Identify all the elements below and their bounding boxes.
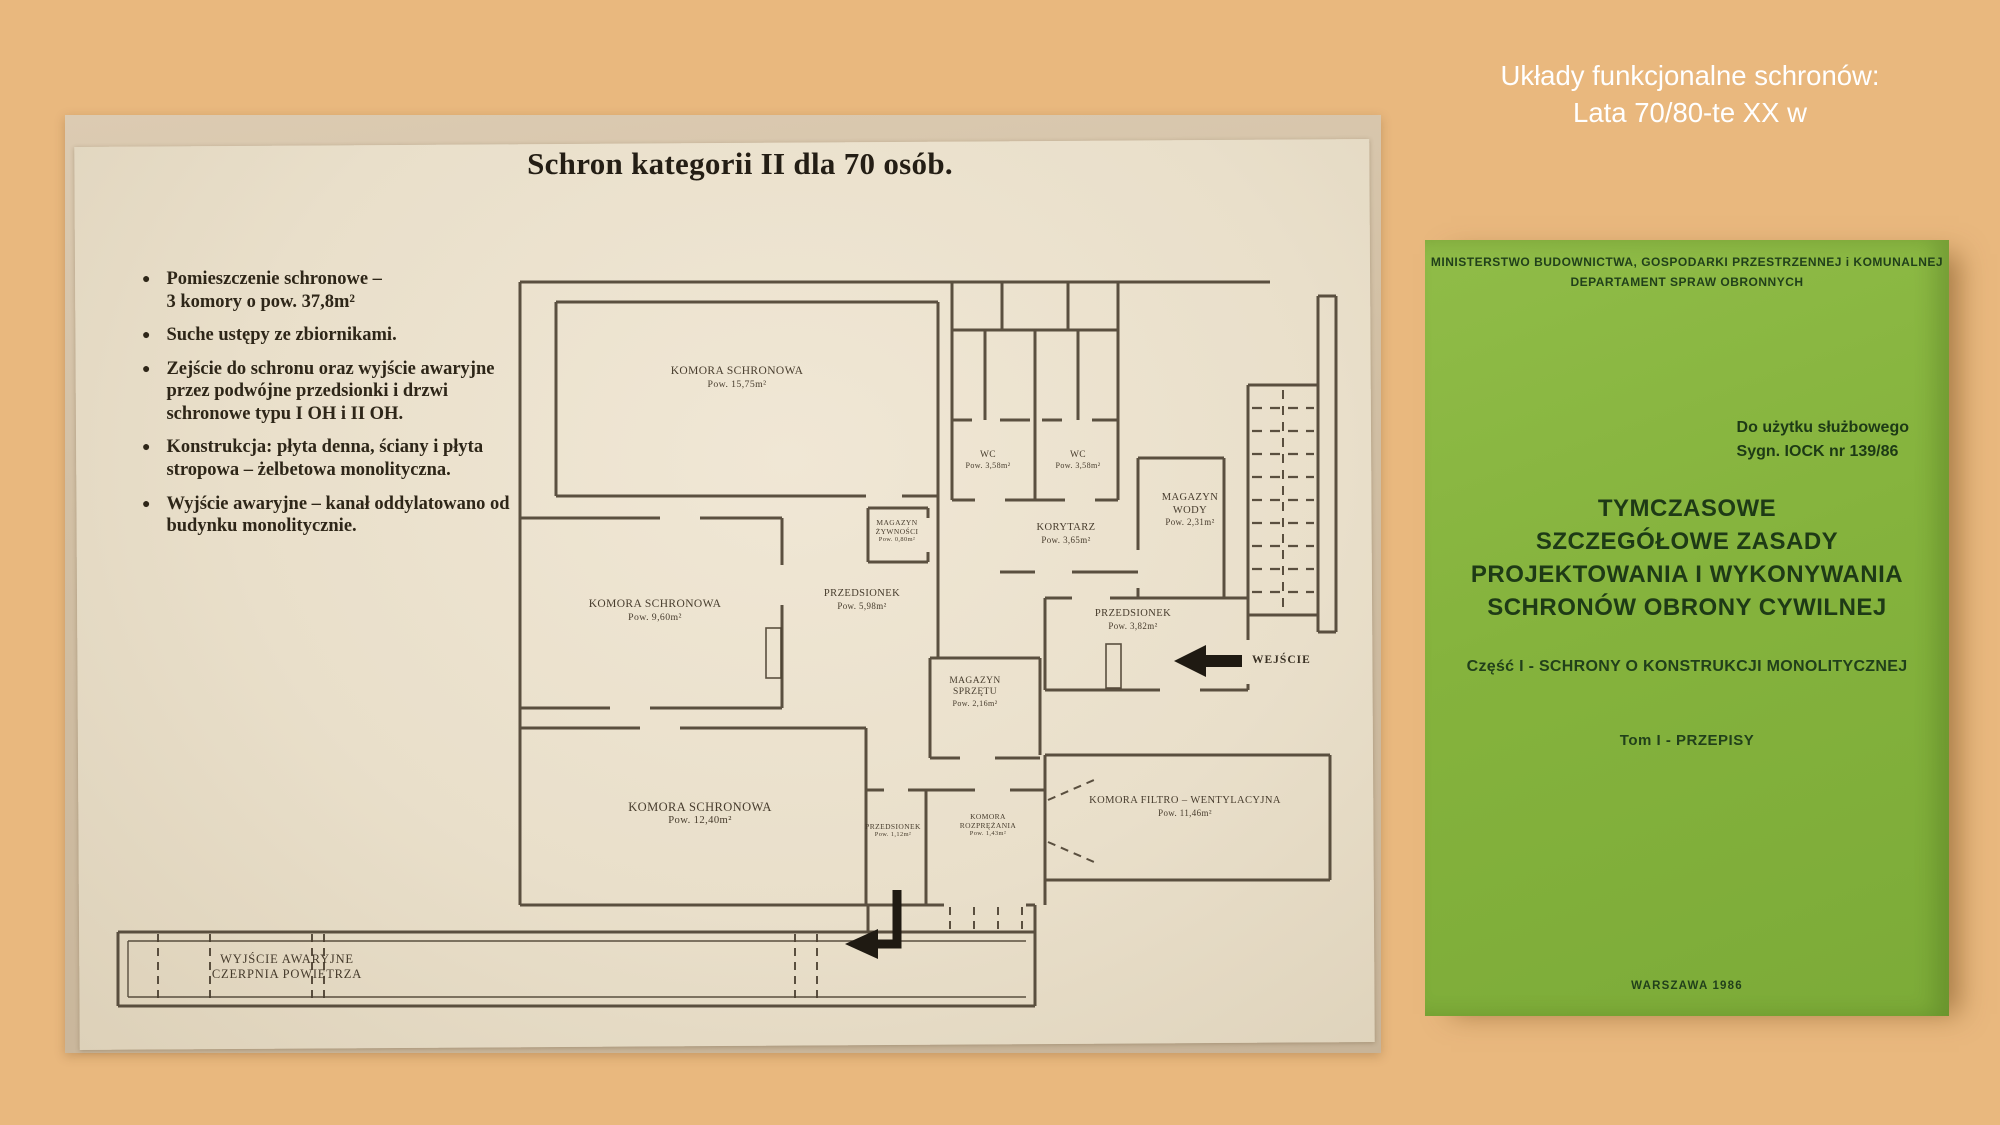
room-label-magazyn-sprzetu: MAGAZYN SPRZĘTUPow. 2,16m² [949,676,1000,708]
book-cover-footer: WARSZAWA 1986 [1425,980,1949,992]
room-label-korytarz: KORYTARZPow. 3,65m² [1037,522,1096,545]
bullet-dot: ● [142,271,150,313]
room-name: PRZEDSIONEK [865,822,921,831]
room-name: KORYTARZ [1037,522,1096,535]
room-name: MAGAZYN SPRZĘTU [949,676,1000,699]
room-label-magazyn-wody: MAGAZYN WODYPow. 2,31m² [1162,492,1218,528]
book-cover: MINISTERSTWO BUDOWNICTWA, GOSPODARKI PRZ… [1425,240,1949,1016]
room-label-komora-schronowa-960: KOMORA SCHRONOWAPow. 9,60m² [589,598,722,624]
bullet-item: ●Pomieszczenie schronowe – 3 komory o po… [142,268,572,313]
room-name: MAGAZYN WODY [1162,492,1218,517]
bullet-text: Konstrukcja: płyta denna, ściany i płyta… [166,436,483,481]
entrance-label: WEJŚCIE [1252,654,1311,668]
room-area: Pow. 3,58m² [965,461,1010,471]
bullet-text: Zejście do schronu oraz wyjście awaryjne… [166,358,494,426]
bullet-item: ●Zejście do schronu oraz wyjście awaryjn… [142,358,572,426]
slide-background: Układy funkcjonalne schronów: Lata 70/80… [0,0,2000,1125]
bullet-dot: ● [142,327,150,347]
bullet-text: Wyjście awaryjne – kanał oddylatowano od… [166,493,509,538]
room-name: PRZEDSIONEK [1095,608,1171,621]
room-label-komora-rozprezania: KOMORA ROZPRĘŻANIAPow. 1,43m² [960,812,1016,838]
floorplan-photo [65,115,1381,1053]
caption-line1: Układy funkcjonalne schronów: [1350,57,2000,94]
room-label-wc-1: WCPow. 3,58m² [965,450,1010,471]
book-cover-ministry: MINISTERSTWO BUDOWNICTWA, GOSPODARKI PRZ… [1425,252,1949,292]
floorplan-notes: ●Pomieszczenie schronowe – 3 komory o po… [142,268,572,549]
room-name: WC [1055,450,1100,461]
room-label-przedsionek-598: PRZEDSIONEKPow. 5,98m² [824,588,900,611]
room-area: Pow. 15,75m² [671,379,804,391]
bullet-item: ●Wyjście awaryjne – kanał oddylatowano o… [142,493,572,538]
bullet-dot: ● [142,496,150,538]
room-name: WC [965,450,1010,461]
room-area: Pow. 2,16m² [949,699,1000,709]
room-name: MAGAZYN ŻYWNOŚCI [876,518,919,536]
room-name: PRZEDSIONEK [824,588,900,601]
room-area: Pow. 5,98m² [824,601,900,612]
bullet-item: ●Suche ustępy ze zbiornikami. [142,324,572,347]
ministry-line2: DEPARTAMENT SPRAW OBRONNYCH [1425,272,1949,292]
room-area: Pow. 3,82m² [1095,621,1171,632]
room-area: Pow. 11,46m² [1089,808,1281,819]
room-name: KOMORA SCHRONOWA [589,598,722,612]
book-cover-volume-line: Tom I - PRZEPISY [1425,732,1949,749]
room-name: KOMORA FILTRO – WENTYLACYJNA [1089,795,1281,808]
room-area: Pow. 1,43m² [960,830,1016,838]
bullet-text: Suche ustępy ze zbiornikami. [166,324,396,347]
room-area: Pow. 3,65m² [1037,535,1096,546]
room-label-komora-schronowa-1575: KOMORA SCHRONOWAPow. 15,75m² [671,365,804,391]
floorplan-title: Schron kategorii II dla 70 osób. [527,146,953,182]
book-cover-part-line: Część I - SCHRONY O KONSTRUKCJI MONOLITY… [1425,658,1949,676]
room-label-komora-filtro-wentylacyjna: KOMORA FILTRO – WENTYLACYJNAPow. 11,46m² [1089,795,1281,818]
book-cover-usage-note: Do użytku służbowego Sygn. IOCK nr 139/8… [1737,416,1909,464]
room-name: KOMORA SCHRONOWA [671,365,804,379]
room-name: KOMORA SCHRONOWA [628,800,772,815]
room-area: Pow. 3,58m² [1055,461,1100,471]
bullet-text: Pomieszczenie schronowe – 3 komory o pow… [166,268,381,313]
book-cover-title: TYMCZASOWE SZCZEGÓŁOWE ZASADY PROJEKTOWA… [1425,492,1949,624]
room-label-komora-schronowa-1240: KOMORA SCHRONOWAPow. 12,40m² [628,800,772,828]
emergency-exit-label: WYJŚCIE AWARYJNE CZERPNIA POWIETRZA [212,952,362,982]
room-label-przedsionek-382: PRZEDSIONEKPow. 3,82m² [1095,608,1171,631]
bullet-dot: ● [142,439,150,481]
room-label-wc-2: WCPow. 3,58m² [1055,450,1100,471]
room-label-przedsionek-112: PRZEDSIONEKPow. 1,12m² [865,822,921,839]
room-area: Pow. 9,60m² [589,612,722,624]
room-label-magazyn-zywnosci: MAGAZYN ŻYWNOŚCIPow. 0,80m² [876,518,919,544]
ministry-line1: MINISTERSTWO BUDOWNICTWA, GOSPODARKI PRZ… [1425,252,1949,272]
room-name: KOMORA ROZPRĘŻANIA [960,812,1016,830]
slide-caption: Układy funkcjonalne schronów: Lata 70/80… [1350,57,2000,131]
room-area: Pow. 2,31m² [1162,517,1218,528]
room-area: Pow. 0,80m² [876,536,919,544]
room-area: Pow. 1,12m² [865,831,921,839]
caption-line2: Lata 70/80-te XX w [1350,94,2000,131]
bullet-dot: ● [142,361,150,426]
room-area: Pow. 12,40m² [628,815,772,828]
bullet-item: ●Konstrukcja: płyta denna, ściany i płyt… [142,436,572,481]
